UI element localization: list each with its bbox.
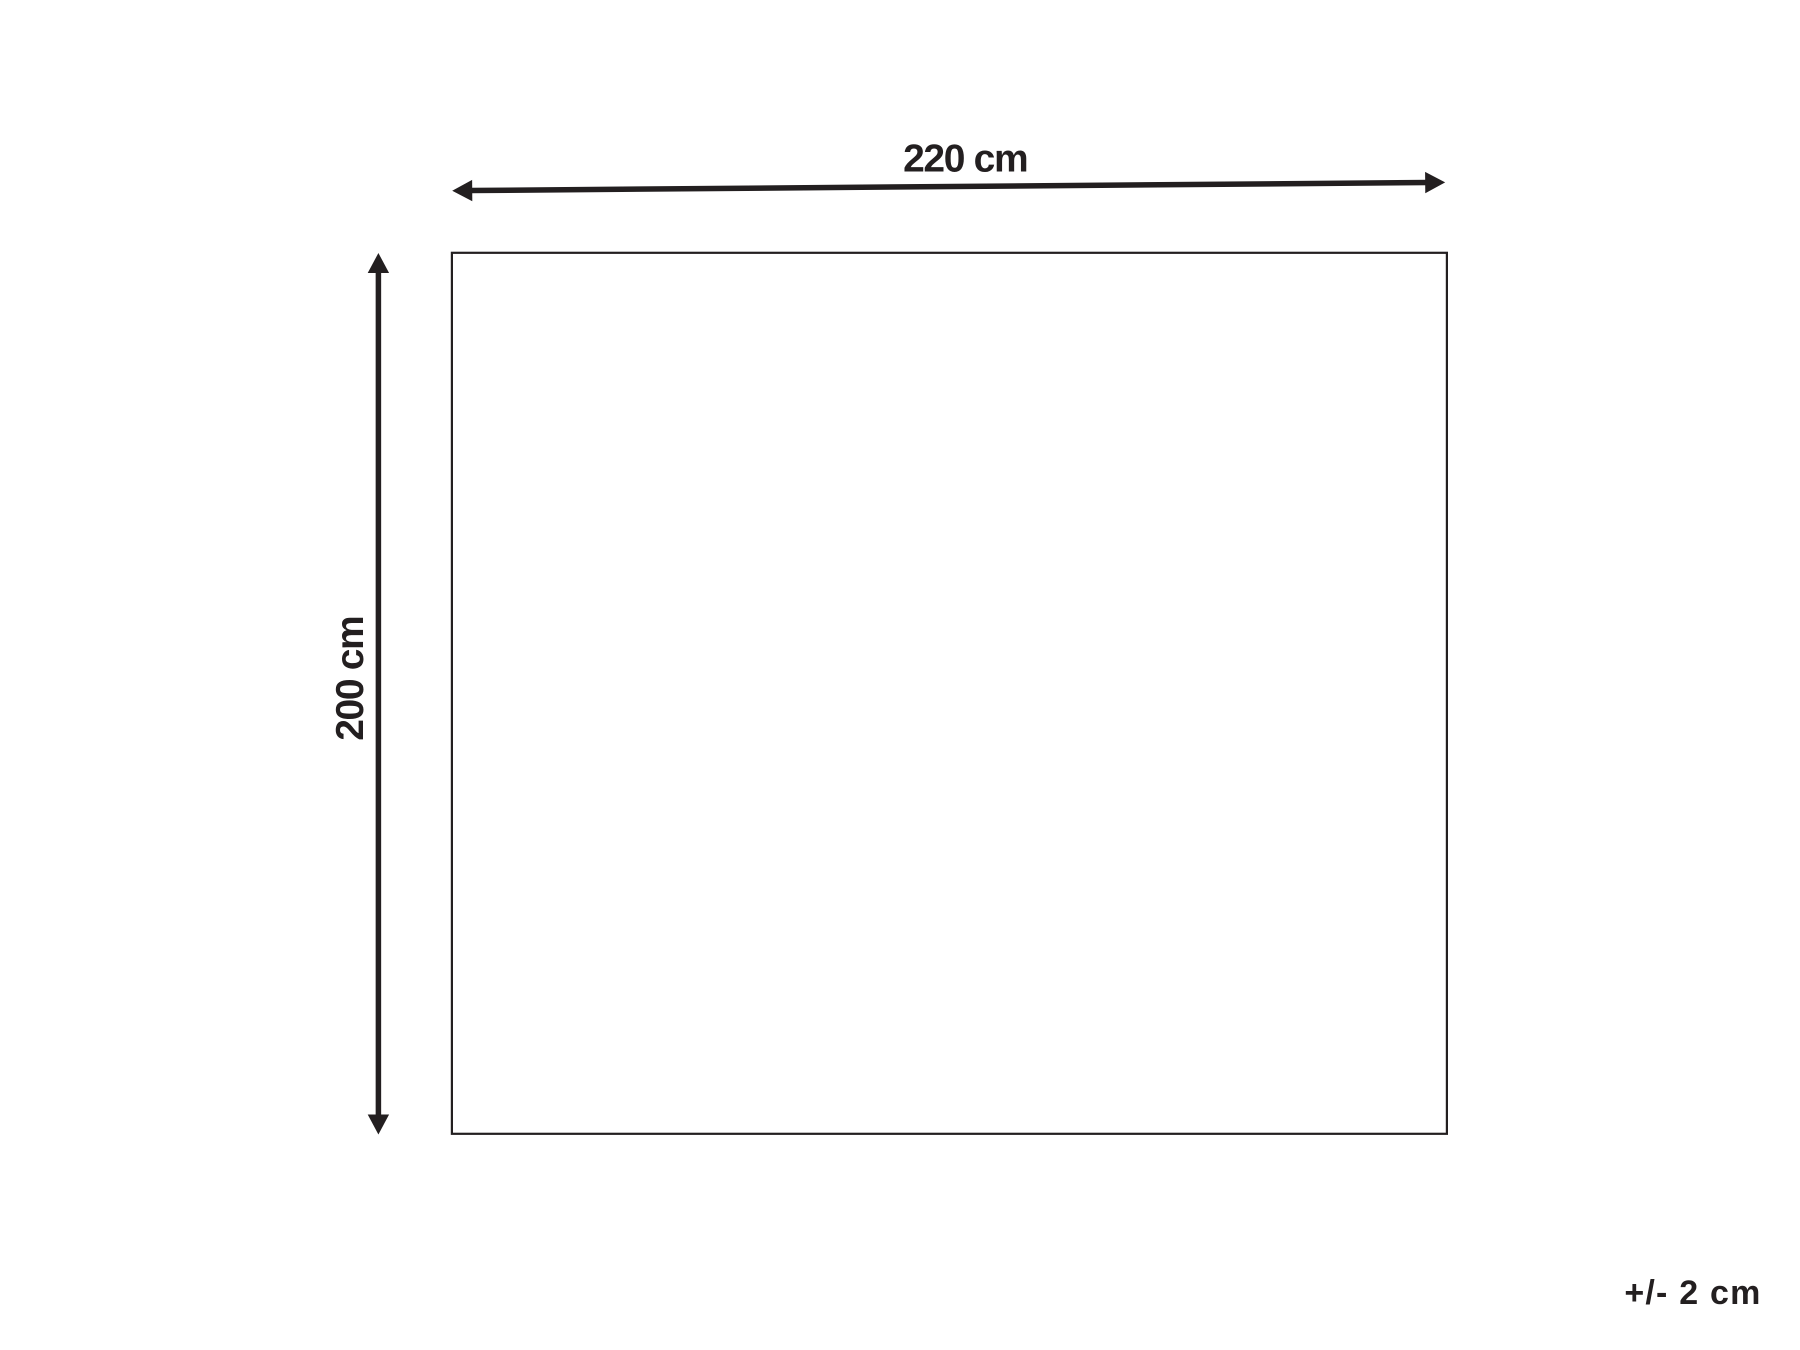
svg-text:200 cm: 200 cm: [329, 617, 372, 741]
svg-text:220 cm: 220 cm: [903, 138, 1027, 181]
svg-text:+/- 2 cm: +/- 2 cm: [1624, 1274, 1761, 1312]
